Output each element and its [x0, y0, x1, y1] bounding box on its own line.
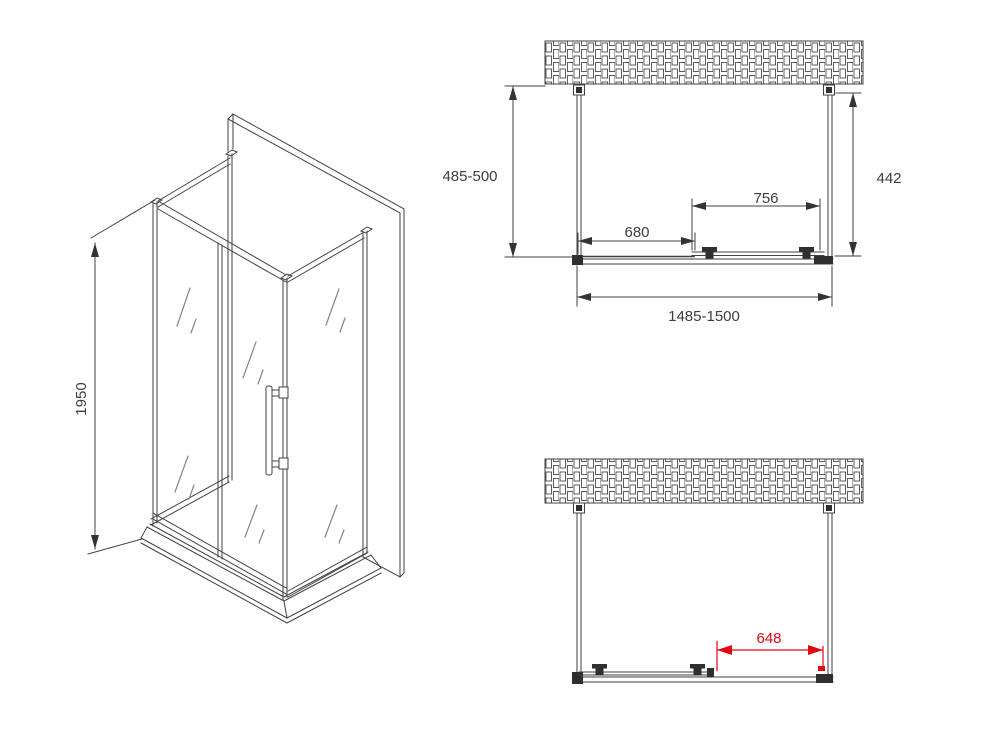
glass-panels	[151, 243, 367, 597]
wall-hatch	[545, 41, 863, 84]
plan-view-door-open: 648	[545, 459, 863, 684]
dim-label-height: 1950	[73, 382, 90, 415]
bottom-track-open	[572, 664, 833, 684]
door-handle	[266, 386, 288, 475]
wall-hatch	[545, 459, 863, 503]
wall-profiles	[574, 503, 835, 681]
door-roller	[592, 664, 607, 676]
glass-shine-marks	[175, 288, 345, 543]
dim-label-opening: 648	[756, 630, 781, 647]
dim-label-side-depth: 485-500	[442, 168, 497, 185]
dimension-opening: 648	[717, 630, 825, 671]
isometric-view: 1950	[73, 114, 404, 623]
dimension-door-width: 756	[692, 190, 820, 250]
dimension-fixed-panel: 680	[578, 224, 695, 254]
dim-label-wall-offset: 442	[876, 170, 901, 187]
door-roller	[702, 247, 717, 259]
dimension-wall-offset: 442	[835, 93, 902, 256]
dim-label-door-width: 756	[753, 190, 778, 207]
bottom-track-closed	[572, 247, 833, 265]
door-roller	[799, 247, 814, 259]
plan-view-door-closed: 485-500 442 756 680	[442, 41, 901, 325]
dim-label-overall-width: 1485-1500	[668, 308, 740, 325]
technical-drawing: 1950	[0, 0, 1000, 753]
drawing-canvas: 1950	[0, 0, 1000, 753]
wall-profiles	[574, 85, 835, 258]
door-roller	[690, 664, 705, 676]
dimension-side-depth: 485-500	[442, 86, 572, 257]
dimension-overall-width: 1485-1500	[577, 266, 832, 325]
dim-label-fixed-panel: 680	[624, 224, 649, 241]
dimension-height: 1950	[73, 200, 155, 554]
